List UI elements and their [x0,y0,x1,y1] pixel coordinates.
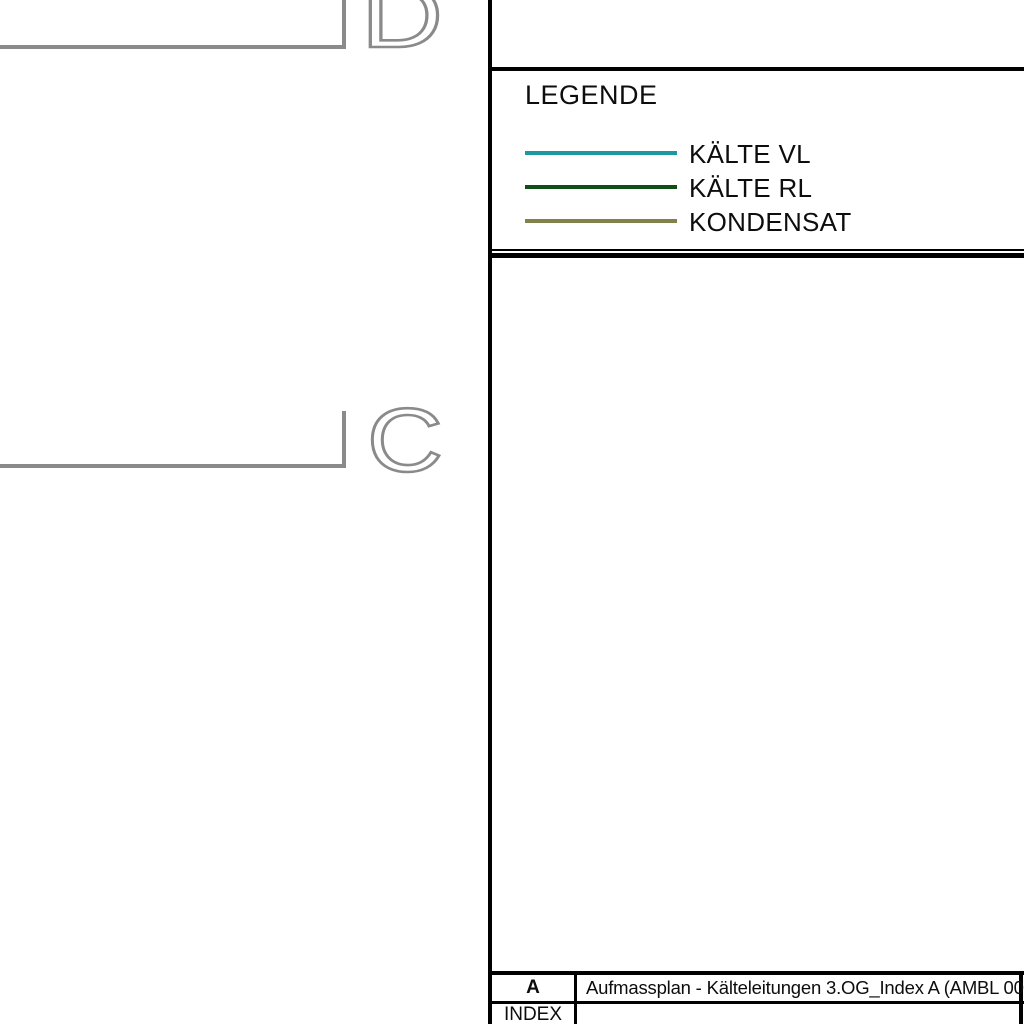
legend-top-border [488,67,1024,71]
legend-title: LEGENDE [525,80,658,111]
legend-label-kaelte-rl: KÄLTE RL [689,175,812,202]
legend-label-kaelte-vl: KÄLTE VL [689,141,811,168]
legend-bottom-border-thin [488,249,1024,251]
revision-description: Aufmassplan - Kälteleitungen 3.OG_Index … [586,975,1018,1001]
legend-line-kaelte-vl [525,151,677,155]
index-column-label: INDEX [492,1005,574,1024]
legend-line-kondensat [525,219,677,223]
grid-axis-label-d: D [361,0,443,67]
panel-divider-line [488,0,492,1024]
drawing-sheet: D C LEGENDE KÄLTE VL KÄLTE RL KONDENSAT … [0,0,1024,1024]
grid-line-c [0,411,344,466]
legend-line-kaelte-rl [525,185,677,189]
titleblock-row-divider [488,1001,1024,1004]
grid-line-d [0,0,344,47]
grid-axis-label-c: C [367,391,443,491]
titleblock-column-divider [574,971,577,1024]
revision-letter: A [492,975,574,1001]
legend-label-kondensat: KONDENSAT [689,209,852,236]
legend-bottom-border-thick [488,253,1024,258]
floor-plan-fragment: D C [0,0,1024,1024]
